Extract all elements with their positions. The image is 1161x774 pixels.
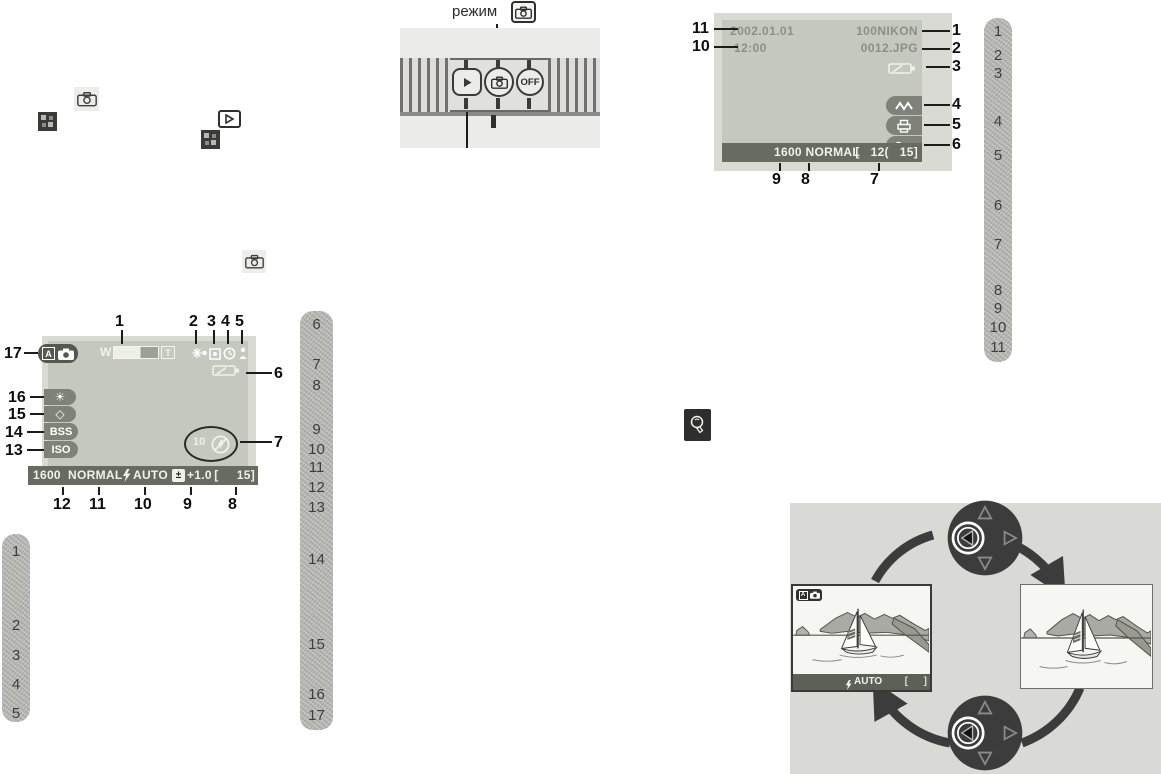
battery-icon [888, 62, 916, 80]
date-readout: 2002.01.01 [730, 25, 794, 37]
callout-line [808, 163, 810, 171]
play-icon [462, 77, 473, 88]
callout-number: 8 [228, 497, 237, 513]
callout-number: 1 [952, 23, 961, 39]
self-timer-icon [223, 347, 236, 365]
playback-icon [218, 110, 241, 128]
iso-label: ISO [44, 441, 78, 458]
tip-lightbulb-icon [684, 409, 711, 441]
image-size-quality: 1600 NORMAL [774, 143, 860, 162]
callout-line [227, 330, 229, 344]
folder-readout: 100NIKON [830, 25, 918, 37]
legend-number: 3 [2, 648, 30, 663]
legend-number: 15 [300, 637, 333, 652]
dial-notch [464, 98, 468, 109]
image-sharpening-icon: ◇ [44, 406, 76, 422]
callout-line [926, 66, 950, 68]
movie-icon [886, 96, 922, 115]
dial-ridges-right [548, 58, 600, 112]
mode-letter: A [42, 347, 55, 360]
image-quality: NORMAL [68, 466, 122, 485]
play-mode-button [452, 68, 482, 96]
image-size: 1600 [33, 466, 61, 485]
callout-number: 17 [4, 346, 22, 362]
callout-line [714, 46, 738, 48]
callout-number: 2 [189, 314, 198, 330]
legend-number: 5 [2, 706, 30, 721]
callout-number: 15 [8, 407, 26, 423]
legend-number: 3 [984, 66, 1012, 81]
dial-ridges-left [400, 58, 450, 112]
legend-strip-middle: 6 7 8 9 10 11 12 13 14 15 16 17 [300, 311, 333, 730]
dial-label: режим [452, 3, 497, 20]
mode-dial-diagram: OFF [400, 28, 600, 148]
flash-icon [122, 469, 131, 487]
legend-number: 2 [984, 48, 1012, 63]
callout-line [62, 487, 64, 495]
callout-number: 5 [952, 117, 961, 133]
callout-number: 9 [183, 497, 192, 513]
zoom-wide-label: W [100, 345, 111, 359]
legend-number: 11 [984, 340, 1012, 355]
callout-number: 11 [89, 497, 106, 513]
callout-number: 4 [952, 97, 961, 113]
zoom-indicator-bar [113, 346, 159, 359]
callout-line [924, 104, 950, 106]
legend-number: 2 [2, 618, 30, 633]
metering-icon [209, 347, 221, 365]
callout-number: 6 [952, 137, 961, 153]
flash-icon [845, 677, 852, 695]
callout-number: 1 [115, 314, 124, 330]
shooting-mode-button [484, 67, 514, 97]
playback-info-bar: 1600 NORMAL [ 12( 15] [722, 143, 922, 162]
shooting-info-bar: 1600 NORMAL AUTO ± +1.0 [ 15] [28, 466, 258, 485]
callout-line [714, 28, 738, 30]
self-timer-count: 10 [193, 436, 205, 448]
legend-number: 4 [984, 114, 1012, 129]
callout-number: 6 [274, 366, 283, 382]
legend-number: 11 [300, 460, 333, 475]
filename-readout: 0012.JPG [830, 42, 918, 54]
legend-number: 8 [300, 378, 333, 393]
dial-notch [496, 98, 500, 109]
legend-number: 6 [984, 198, 1012, 213]
thumbnail-icon [201, 130, 220, 154]
callout-number: 5 [235, 314, 244, 330]
flash-mode: AUTO [133, 466, 168, 485]
legend-number: 12 [300, 480, 333, 495]
frame-counter: [ 15] [214, 466, 255, 485]
sailboat-scene [1021, 585, 1151, 687]
legend-number: 6 [300, 317, 333, 332]
zoom-tele-label: T [161, 346, 175, 359]
legend-number: 10 [300, 442, 333, 457]
legend-number: 4 [2, 677, 30, 692]
exposure-comp-icon: ± [172, 469, 185, 482]
legend-number: 1 [984, 24, 1012, 39]
legend-number: 16 [300, 687, 333, 702]
callout-line [30, 413, 44, 415]
focus-distance-icon [238, 347, 248, 365]
callout-number: 9 [772, 172, 781, 188]
legend-number: 17 [300, 708, 333, 723]
legend-number: 7 [984, 237, 1012, 252]
callout-number: 4 [221, 314, 230, 330]
callout-line [27, 449, 44, 451]
flash-off-icon [210, 434, 231, 460]
callout-line [240, 441, 272, 443]
callout-line [878, 163, 880, 171]
legend-number: 10 [984, 320, 1012, 335]
callout-number: 12 [53, 497, 71, 513]
flash-mode: AUTO [854, 674, 882, 690]
off-button: OFF [516, 68, 544, 96]
callout-line [27, 431, 44, 433]
legend-number: 9 [984, 301, 1012, 316]
camera-icon [511, 1, 536, 23]
callout-line [924, 124, 950, 126]
callout-line [195, 330, 197, 344]
monitor-on-screen: A AUTO [ ] [791, 584, 932, 692]
legend-number: 7 [300, 357, 333, 372]
callout-number: 10 [134, 497, 152, 513]
battery-icon [212, 364, 240, 382]
callout-number: 3 [952, 59, 961, 75]
callout-number: 7 [870, 172, 879, 188]
legend-number: 13 [300, 500, 333, 515]
callout-line [24, 352, 38, 354]
mode-letter: A [799, 591, 808, 600]
callout-number: 13 [5, 443, 23, 459]
camera-icon [810, 591, 820, 599]
callout-number: 16 [8, 390, 26, 406]
print-order-icon [886, 116, 922, 135]
callout-number: 10 [692, 39, 710, 55]
callout-number: 11 [692, 21, 709, 37]
legend-strip-left: 1 2 3 4 5 [2, 534, 30, 722]
camera-icon [58, 348, 74, 360]
callout-line [241, 330, 243, 344]
callout-line [30, 396, 44, 398]
white-balance-icon: ☀ [44, 389, 76, 405]
time-readout: 12:00 [734, 42, 767, 54]
manual-page: режим OFF 2002.01.01 12:00 100NIKON 0012… [0, 0, 1161, 774]
legend-strip-right: 1 2 3 4 5 6 7 8 9 10 11 [984, 18, 1012, 362]
callout-number: 3 [207, 314, 216, 330]
camera-icon [74, 87, 99, 111]
callout-line [922, 30, 950, 32]
callout-line [924, 144, 950, 146]
focus-mode-icon [192, 347, 207, 365]
callout-line [98, 487, 100, 495]
camera-icon [242, 250, 266, 273]
legend-number: 14 [300, 552, 333, 567]
camera-icon [491, 76, 508, 89]
callout-line [235, 487, 237, 495]
shooting-info-bar: AUTO [ ] [793, 674, 930, 690]
multi-selector [945, 498, 1025, 578]
legend-number: 8 [984, 283, 1012, 298]
callout-line [779, 163, 781, 171]
auto-mode-badge: A [38, 344, 78, 363]
frame-bracket: [ [905, 674, 908, 690]
callout-line [246, 372, 272, 374]
callout-line [190, 487, 192, 495]
callout-line [213, 330, 215, 344]
callout-number: 8 [801, 172, 810, 188]
callout-line [121, 330, 123, 344]
bss-label: BSS [44, 423, 78, 440]
dial-seam [400, 112, 600, 116]
legend-number: 9 [300, 422, 333, 437]
frame-counter: [ 12( 15] [855, 143, 918, 162]
multi-selector [945, 693, 1025, 773]
mode-cycle-diagram: A AUTO [ ] [790, 503, 1161, 774]
monitor-off-screen [1020, 584, 1153, 689]
frame-bracket: ] [924, 674, 927, 690]
dial-index-mark [491, 115, 496, 128]
legend-number: 1 [2, 544, 30, 559]
legend-number: 5 [984, 148, 1012, 163]
callout-number: 14 [5, 425, 23, 441]
auto-mode-badge: A [796, 589, 822, 601]
callout-ellipse: 10 [184, 426, 238, 462]
callout-number: 2 [952, 41, 961, 57]
dial-notch [527, 98, 531, 109]
callout-line [144, 487, 146, 495]
exposure-comp-value: +1.0 [187, 466, 212, 485]
callout-number: 7 [274, 435, 283, 451]
thumbnail-icon [38, 112, 57, 136]
callout-line [922, 48, 950, 50]
dial-callout-line [466, 112, 468, 148]
